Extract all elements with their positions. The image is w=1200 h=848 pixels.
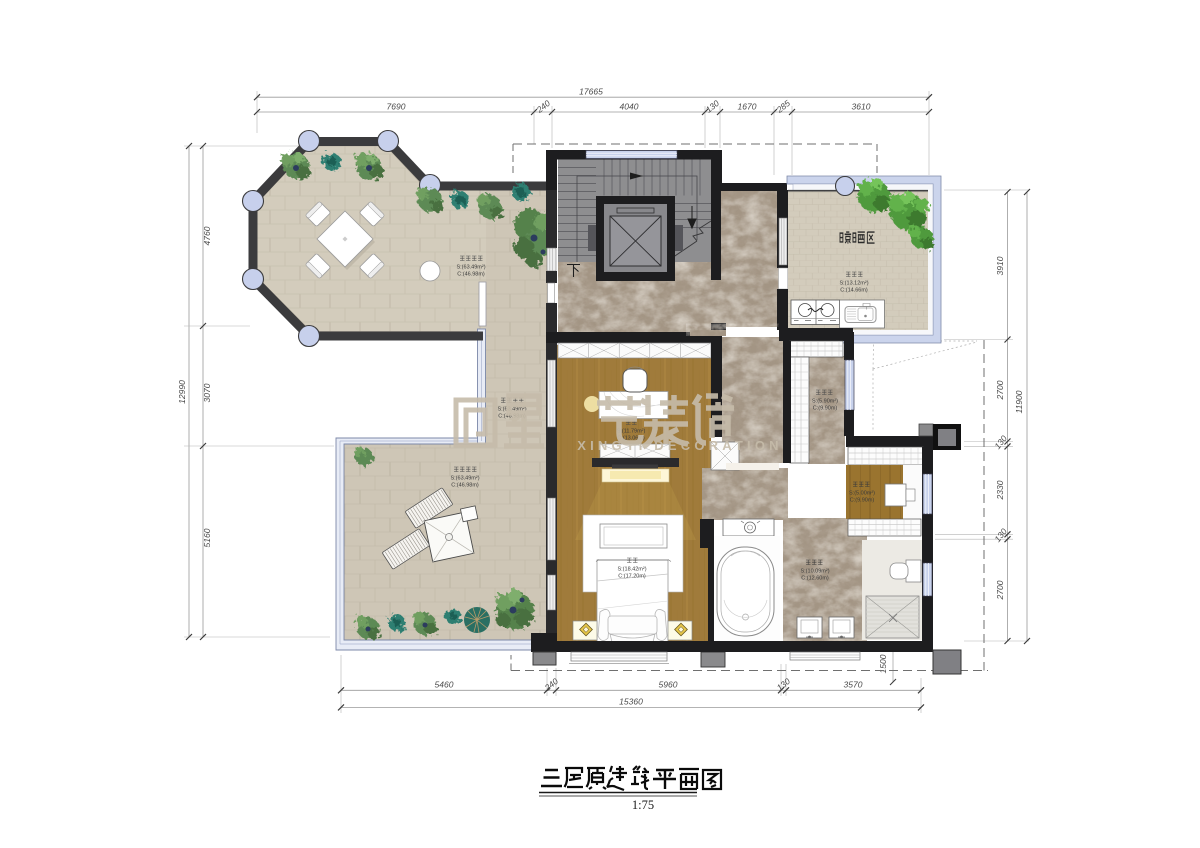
svg-text:XINGYI DECORATION: XINGYI DECORATION — [577, 438, 783, 453]
svg-text:5460: 5460 — [435, 680, 454, 690]
svg-text:S:(5.00m²): S:(5.00m²) — [849, 491, 875, 497]
svg-text:3070: 3070 — [202, 383, 212, 402]
svg-text:C:(46.98m): C:(46.98m) — [457, 272, 485, 278]
svg-text:C:(12.60m): C:(12.60m) — [801, 576, 829, 582]
svg-text:C:(17.20m): C:(17.20m) — [618, 574, 646, 580]
svg-text:12990: 12990 — [177, 380, 187, 404]
svg-text:2700: 2700 — [995, 380, 1005, 400]
svg-text:S:(18.42m²): S:(18.42m²) — [617, 567, 646, 573]
svg-text:S:(5.90m²): S:(5.90m²) — [812, 399, 838, 405]
svg-text:C:(9.90m): C:(9.90m) — [813, 406, 838, 412]
svg-text:4040: 4040 — [620, 102, 639, 112]
svg-text:5960: 5960 — [659, 680, 678, 690]
svg-text:C:(14.66m): C:(14.66m) — [840, 288, 868, 294]
svg-text:2330: 2330 — [995, 480, 1005, 500]
svg-text:C:(9.90m): C:(9.90m) — [850, 498, 875, 504]
svg-text:1:75: 1:75 — [632, 798, 654, 812]
svg-text:4760: 4760 — [202, 226, 212, 245]
svg-text:11900: 11900 — [1014, 390, 1024, 413]
svg-text:7690: 7690 — [387, 102, 406, 112]
svg-text:3910: 3910 — [995, 256, 1005, 275]
svg-text:S:(13.12m²): S:(13.12m²) — [839, 281, 868, 287]
svg-text:17665: 17665 — [579, 87, 603, 97]
svg-text:5160: 5160 — [202, 528, 212, 547]
svg-text:3610: 3610 — [852, 102, 871, 112]
svg-text:S:(63.49m²): S:(63.49m²) — [456, 265, 485, 271]
svg-text:3570: 3570 — [844, 680, 863, 690]
svg-text:15360: 15360 — [619, 697, 643, 707]
svg-text:2700: 2700 — [995, 580, 1005, 600]
svg-text:1670: 1670 — [738, 102, 757, 112]
svg-text:S:(10.09m²): S:(10.09m²) — [800, 569, 829, 575]
